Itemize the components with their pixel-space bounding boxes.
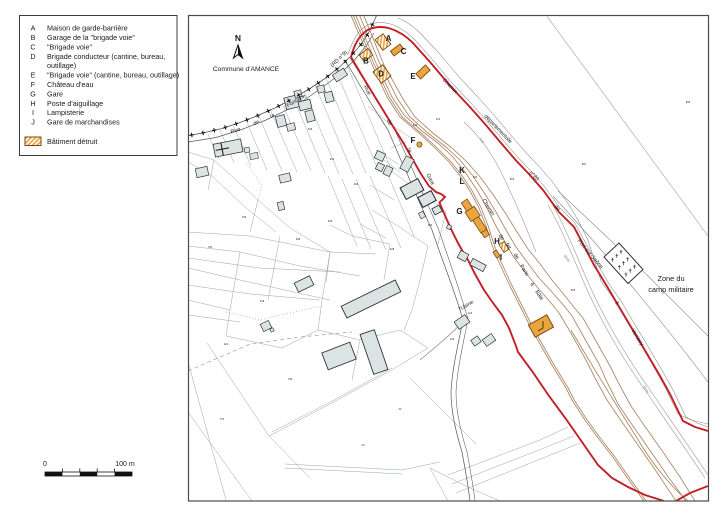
svg-text:N: N [235, 33, 241, 43]
svg-text:422: 422 [224, 342, 229, 346]
svg-text:A: A [31, 24, 36, 33]
svg-text:G: G [30, 89, 36, 98]
svg-text:408: 408 [296, 237, 301, 241]
svg-text:I: I [32, 108, 34, 117]
svg-text:I: I [500, 253, 502, 262]
svg-text:432: 432 [428, 223, 433, 227]
svg-text:412: 412 [436, 117, 441, 121]
svg-text:F: F [411, 136, 416, 145]
svg-text:703: 703 [242, 215, 247, 219]
svg-text:G: G [456, 207, 462, 216]
svg-text:Garage de la "brigade voie": Garage de la "brigade voie" [47, 33, 135, 42]
svg-text:A: A [386, 34, 392, 43]
svg-text:E: E [410, 72, 416, 81]
svg-text:E: E [31, 71, 36, 80]
svg-text:410: 410 [330, 157, 335, 161]
svg-text:Gare de marchandises: Gare de marchandises [47, 118, 120, 127]
svg-text:425: 425 [328, 219, 333, 223]
svg-text:"Brigade voie": "Brigade voie" [47, 42, 93, 51]
svg-text:H: H [30, 99, 35, 108]
svg-text:Maison de garde-barrière: Maison de garde-barrière [47, 24, 128, 33]
svg-text:833: 833 [686, 100, 691, 104]
svg-text:K: K [459, 166, 465, 175]
svg-text:C: C [401, 47, 407, 56]
svg-text:Poste d'aiguillage: Poste d'aiguillage [47, 99, 103, 108]
svg-text:Brigade conducteur (cantine, b: Brigade conducteur (cantine, bureau, [47, 52, 165, 61]
svg-text:B: B [31, 33, 36, 42]
svg-text:702: 702 [208, 245, 213, 249]
svg-text:122: 122 [468, 311, 473, 315]
svg-text:D: D [30, 52, 35, 61]
svg-text:Lampisterie: Lampisterie [47, 108, 84, 117]
svg-text:"Brigade voie" (cantine, burea: "Brigade voie" (cantine, bureau, outilla… [47, 71, 179, 80]
svg-text:outillage): outillage) [47, 61, 76, 70]
svg-text:Commune d'AMANCE: Commune d'AMANCE [213, 66, 280, 73]
svg-text:C: C [30, 42, 35, 51]
svg-text:413: 413 [413, 123, 418, 127]
svg-text:434: 434 [473, 175, 478, 179]
svg-text:F: F [31, 80, 36, 89]
svg-text:J: J [31, 118, 35, 127]
svg-text:Château d'eau: Château d'eau [47, 80, 94, 89]
svg-text:837: 837 [582, 162, 587, 166]
svg-text:406: 406 [308, 127, 313, 131]
svg-text:418: 418 [260, 299, 265, 303]
svg-text:746: 746 [288, 377, 293, 381]
svg-text:L: L [460, 177, 465, 186]
svg-text:D: D [378, 70, 384, 79]
svg-text:428: 428 [390, 247, 395, 251]
svg-text:747: 747 [220, 417, 225, 421]
svg-text:816: 816 [510, 177, 515, 181]
svg-text:camp militaire: camp militaire [648, 285, 694, 294]
svg-text:Bâtiment détruit: Bâtiment détruit [47, 137, 97, 146]
svg-text:Gare: Gare [47, 89, 63, 98]
svg-text:815: 815 [571, 288, 576, 292]
svg-text:409: 409 [354, 182, 359, 186]
svg-text:B: B [363, 57, 369, 66]
svg-text:129: 129 [450, 337, 455, 341]
svg-text:100 m: 100 m [115, 461, 135, 468]
svg-text:0: 0 [43, 461, 47, 468]
svg-text:Zone du: Zone du [657, 274, 684, 283]
